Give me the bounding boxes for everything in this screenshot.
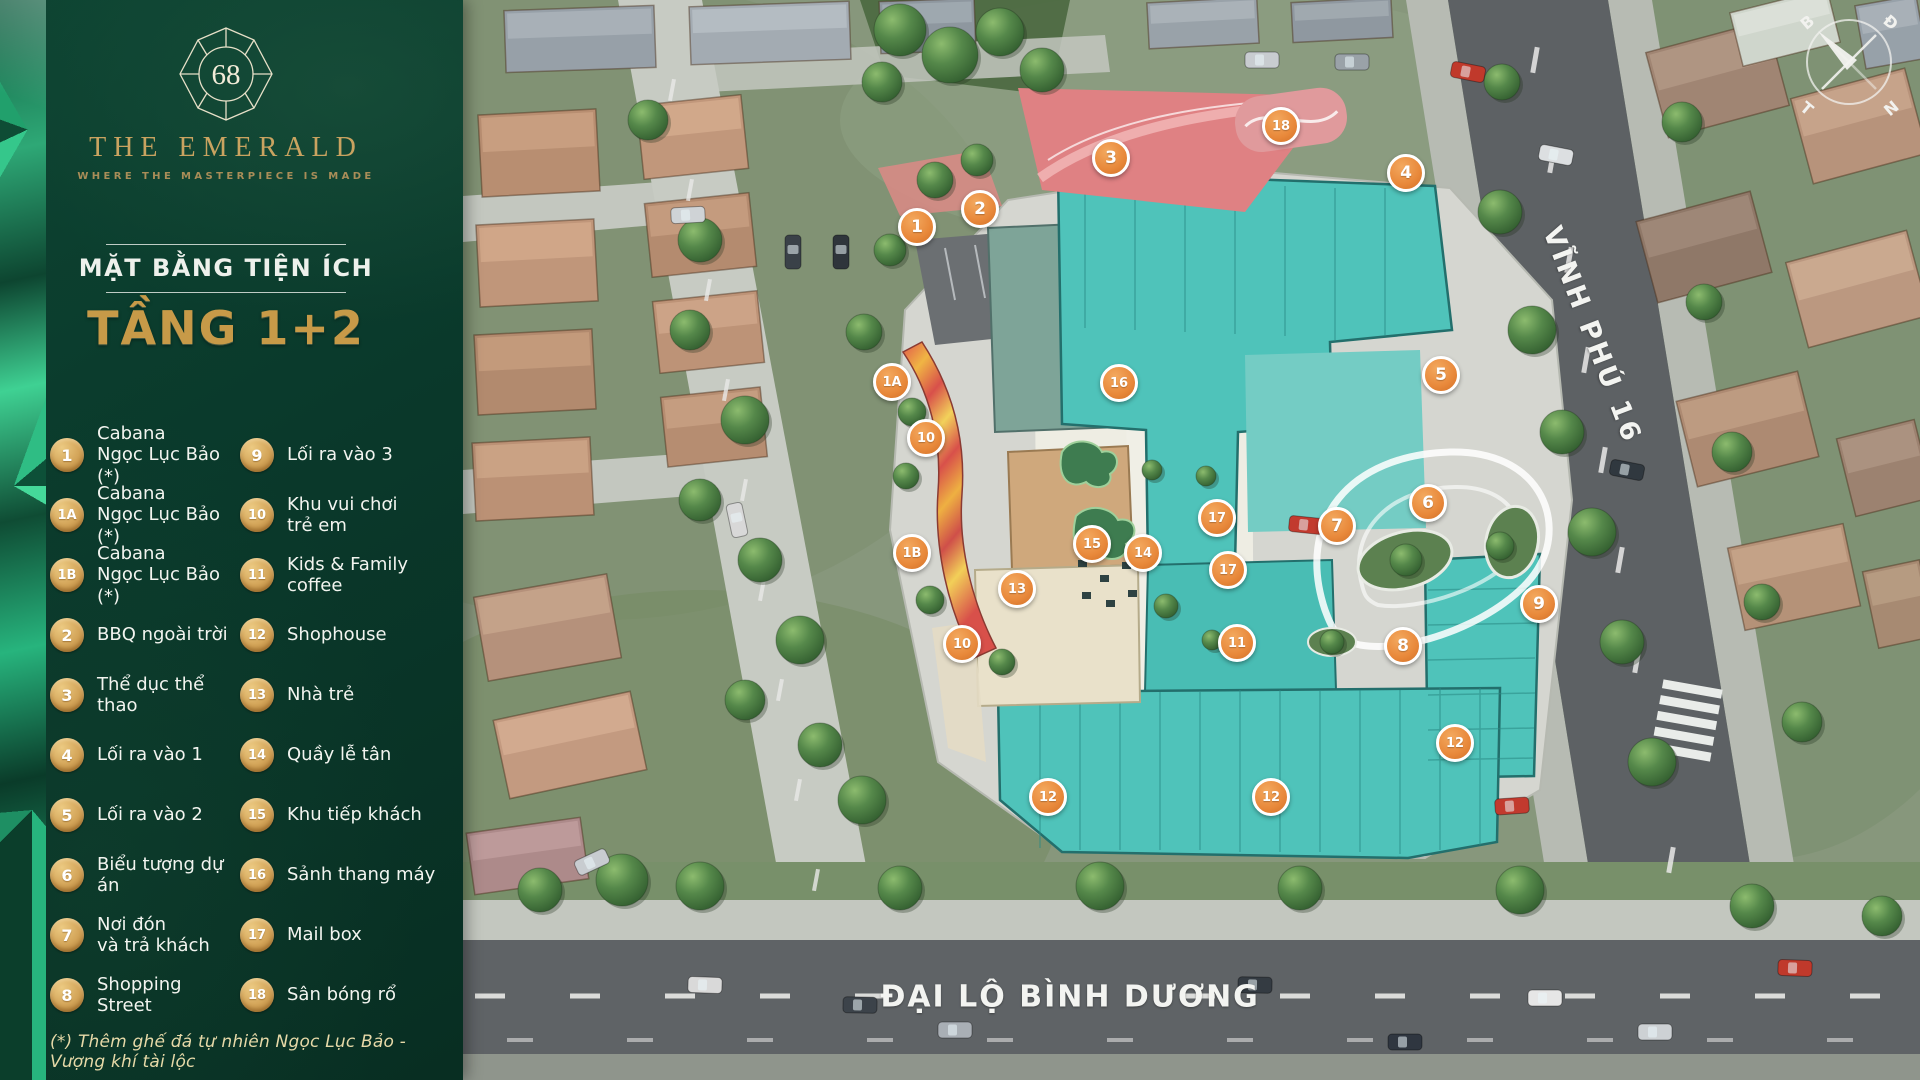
- legend-label-14: Quầy lễ tân: [287, 744, 391, 765]
- legend-badge-2: 2: [50, 618, 84, 652]
- legend-label-13: Nhà trẻ: [287, 684, 354, 705]
- legend-label-3: Thể dục thể thao: [97, 674, 240, 716]
- legend-label-2: BBQ ngoài trời: [97, 624, 228, 645]
- legend-label-1B: Cabana Ngọc Lục Bảo (*): [97, 543, 240, 607]
- legend-badge-7: 7: [50, 918, 84, 952]
- legend-item-2: 2BBQ ngoài trời: [50, 605, 240, 665]
- legend-badge-16: 16: [240, 858, 274, 892]
- legend-badge-10: 10: [240, 498, 274, 532]
- legend-label-4: Lối ra vào 1: [97, 744, 203, 765]
- legend-badge-12: 12: [240, 618, 274, 652]
- legend-label-6: Biểu tượng dự án: [97, 854, 240, 896]
- emerald-crystal-strip: [0, 0, 46, 1080]
- legend-item-10: 10Khu vui chơi trẻ em: [240, 485, 450, 545]
- legend-footnote: (*) Thêm ghế đá tự nhiên Ngọc Lục Bảo - …: [50, 1032, 430, 1072]
- legend-item-3: 3Thể dục thể thao: [50, 665, 240, 725]
- legend-item-18: 18Sân bóng rổ: [240, 965, 450, 1025]
- building-kindergarten: [975, 565, 1140, 706]
- legend-item-8: 8Shopping Street: [50, 965, 240, 1025]
- legend-label-1: Cabana Ngọc Lục Bảo (*): [97, 423, 240, 487]
- legend-label-11: Kids & Family coffee: [287, 554, 450, 596]
- gem-68-icon: 68: [176, 24, 276, 124]
- legend-item-4: 4Lối ra vào 1: [50, 725, 240, 785]
- legend-badge-11: 11: [240, 558, 274, 592]
- legend-item-17: 17Mail box: [240, 905, 450, 965]
- legend-label-1A: Cabana Ngọc Lục Bảo (*): [97, 483, 240, 547]
- legend-item-12: 12Shophouse: [240, 605, 450, 665]
- legend-badge-5: 5: [50, 798, 84, 832]
- legend-badge-3: 3: [50, 678, 84, 712]
- legend-item-13: 13Nhà trẻ: [240, 665, 450, 725]
- legend-badge-1A: 1A: [50, 498, 84, 532]
- building-shophouse-band: [998, 688, 1500, 858]
- brand-logo: 68 THE EMERALD WHERE THE MASTERPIECE IS …: [46, 24, 406, 182]
- legend-badge-8: 8: [50, 978, 84, 1012]
- plan-subtitle: MẶT BẰNG TIỆN ÍCH: [46, 245, 406, 292]
- legend-label-10: Khu vui chơi trẻ em: [287, 494, 397, 536]
- legend-label-9: Lối ra vào 3: [287, 444, 393, 465]
- legend-badge-6: 6: [50, 858, 84, 892]
- legend-label-12: Shophouse: [287, 624, 387, 645]
- legend-label-15: Khu tiếp khách: [287, 804, 422, 825]
- logo-number: 68: [212, 59, 241, 91]
- legend-sidebar: 68 THE EMERALD WHERE THE MASTERPIECE IS …: [0, 0, 463, 1080]
- legend-badge-1: 1: [50, 438, 84, 472]
- legend-label-18: Sân bóng rổ: [287, 984, 396, 1005]
- legend-item-1A: 1ACabana Ngọc Lục Bảo (*): [50, 485, 240, 545]
- legend-item-6: 6Biểu tượng dự án: [50, 845, 240, 905]
- plan-header: MẶT BẰNG TIỆN ÍCH TẦNG 1+2: [46, 244, 406, 355]
- legend-badge-1B: 1B: [50, 558, 84, 592]
- legend-item-14: 14Quầy lễ tân: [240, 725, 450, 785]
- rule-bottom: [106, 292, 346, 293]
- legend-item-15: 15Khu tiếp khách: [240, 785, 450, 845]
- plan-title: TẦNG 1+2: [46, 301, 406, 355]
- legend: 1Cabana Ngọc Lục Bảo (*)1ACabana Ngọc Lụ…: [50, 425, 450, 1025]
- legend-badge-18: 18: [240, 978, 274, 1012]
- legend-badge-15: 15: [240, 798, 274, 832]
- legend-item-7: 7Nơi đón và trả khách: [50, 905, 240, 965]
- legend-item-16: 16Sảnh thang máy: [240, 845, 450, 905]
- legend-badge-13: 13: [240, 678, 274, 712]
- legend-badge-9: 9: [240, 438, 274, 472]
- brand-name: THE EMERALD: [46, 132, 406, 164]
- legend-badge-4: 4: [50, 738, 84, 772]
- legend-item-1B: 1BCabana Ngọc Lục Bảo (*): [50, 545, 240, 605]
- legend-item-11: 11Kids & Family coffee: [240, 545, 450, 605]
- legend-badge-14: 14: [240, 738, 274, 772]
- legend-label-17: Mail box: [287, 924, 362, 945]
- legend-label-8: Shopping Street: [97, 974, 240, 1016]
- legend-label-16: Sảnh thang máy: [287, 864, 435, 885]
- legend-badge-17: 17: [240, 918, 274, 952]
- brand-tagline: WHERE THE MASTERPIECE IS MADE: [46, 171, 406, 182]
- legend-label-7: Nơi đón và trả khách: [97, 914, 210, 956]
- legend-item-1: 1Cabana Ngọc Lục Bảo (*): [50, 425, 240, 485]
- road-label-dai-lo-binh-duong: ĐẠI LỘ BÌNH DƯƠNG: [880, 980, 1260, 1015]
- legend-item-5: 5Lối ra vào 2: [50, 785, 240, 845]
- legend-label-5: Lối ra vào 2: [97, 804, 203, 825]
- legend-item-9: 9Lối ra vào 3: [240, 425, 450, 485]
